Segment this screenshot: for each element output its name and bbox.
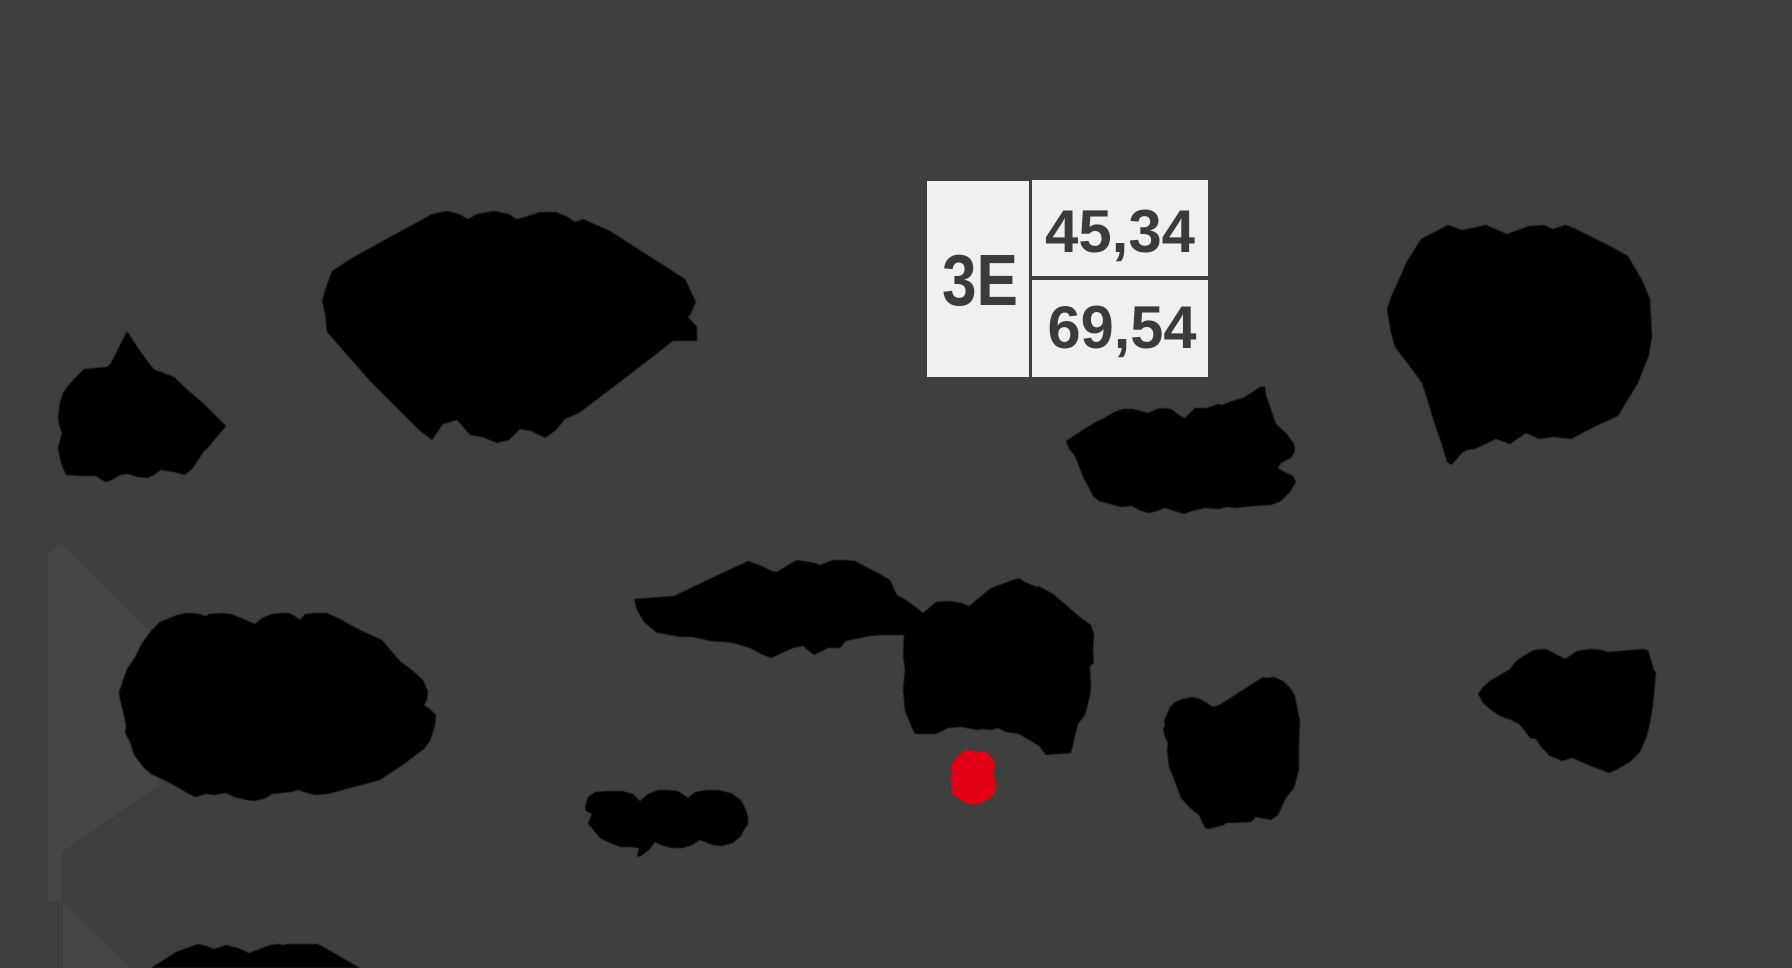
svg-text:45,34: 45,34 (1045, 198, 1196, 265)
svg-text:69,54: 69,54 (1048, 294, 1198, 361)
svg-text:3E: 3E (942, 241, 1018, 321)
